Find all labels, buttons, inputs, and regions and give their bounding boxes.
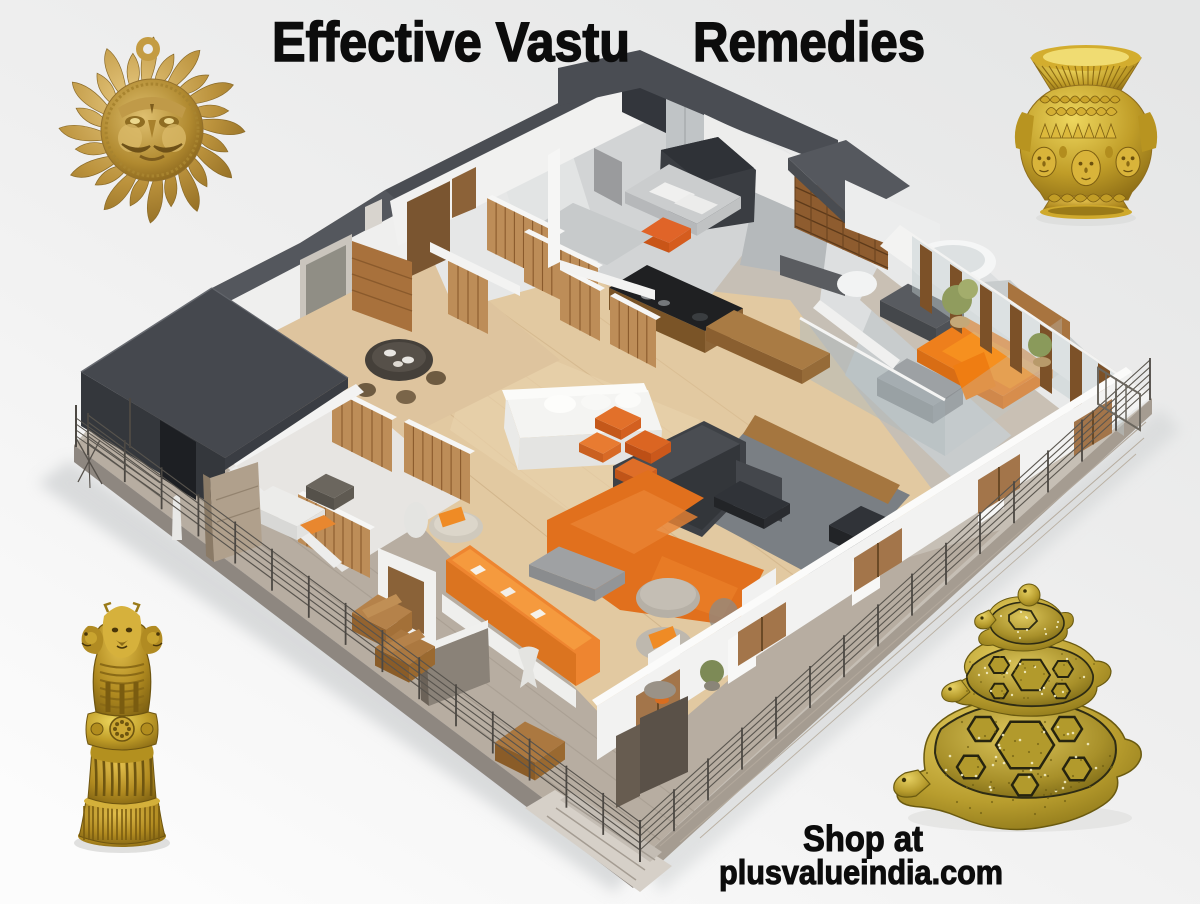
svg-text:Shop at: Shop at [803,818,923,859]
svg-text:Remedies: Remedies [693,10,925,73]
svg-text:Effective Vastu: Effective Vastu [272,10,630,73]
svg-text:plusvalueindia.com: plusvalueindia.com [719,854,1003,892]
